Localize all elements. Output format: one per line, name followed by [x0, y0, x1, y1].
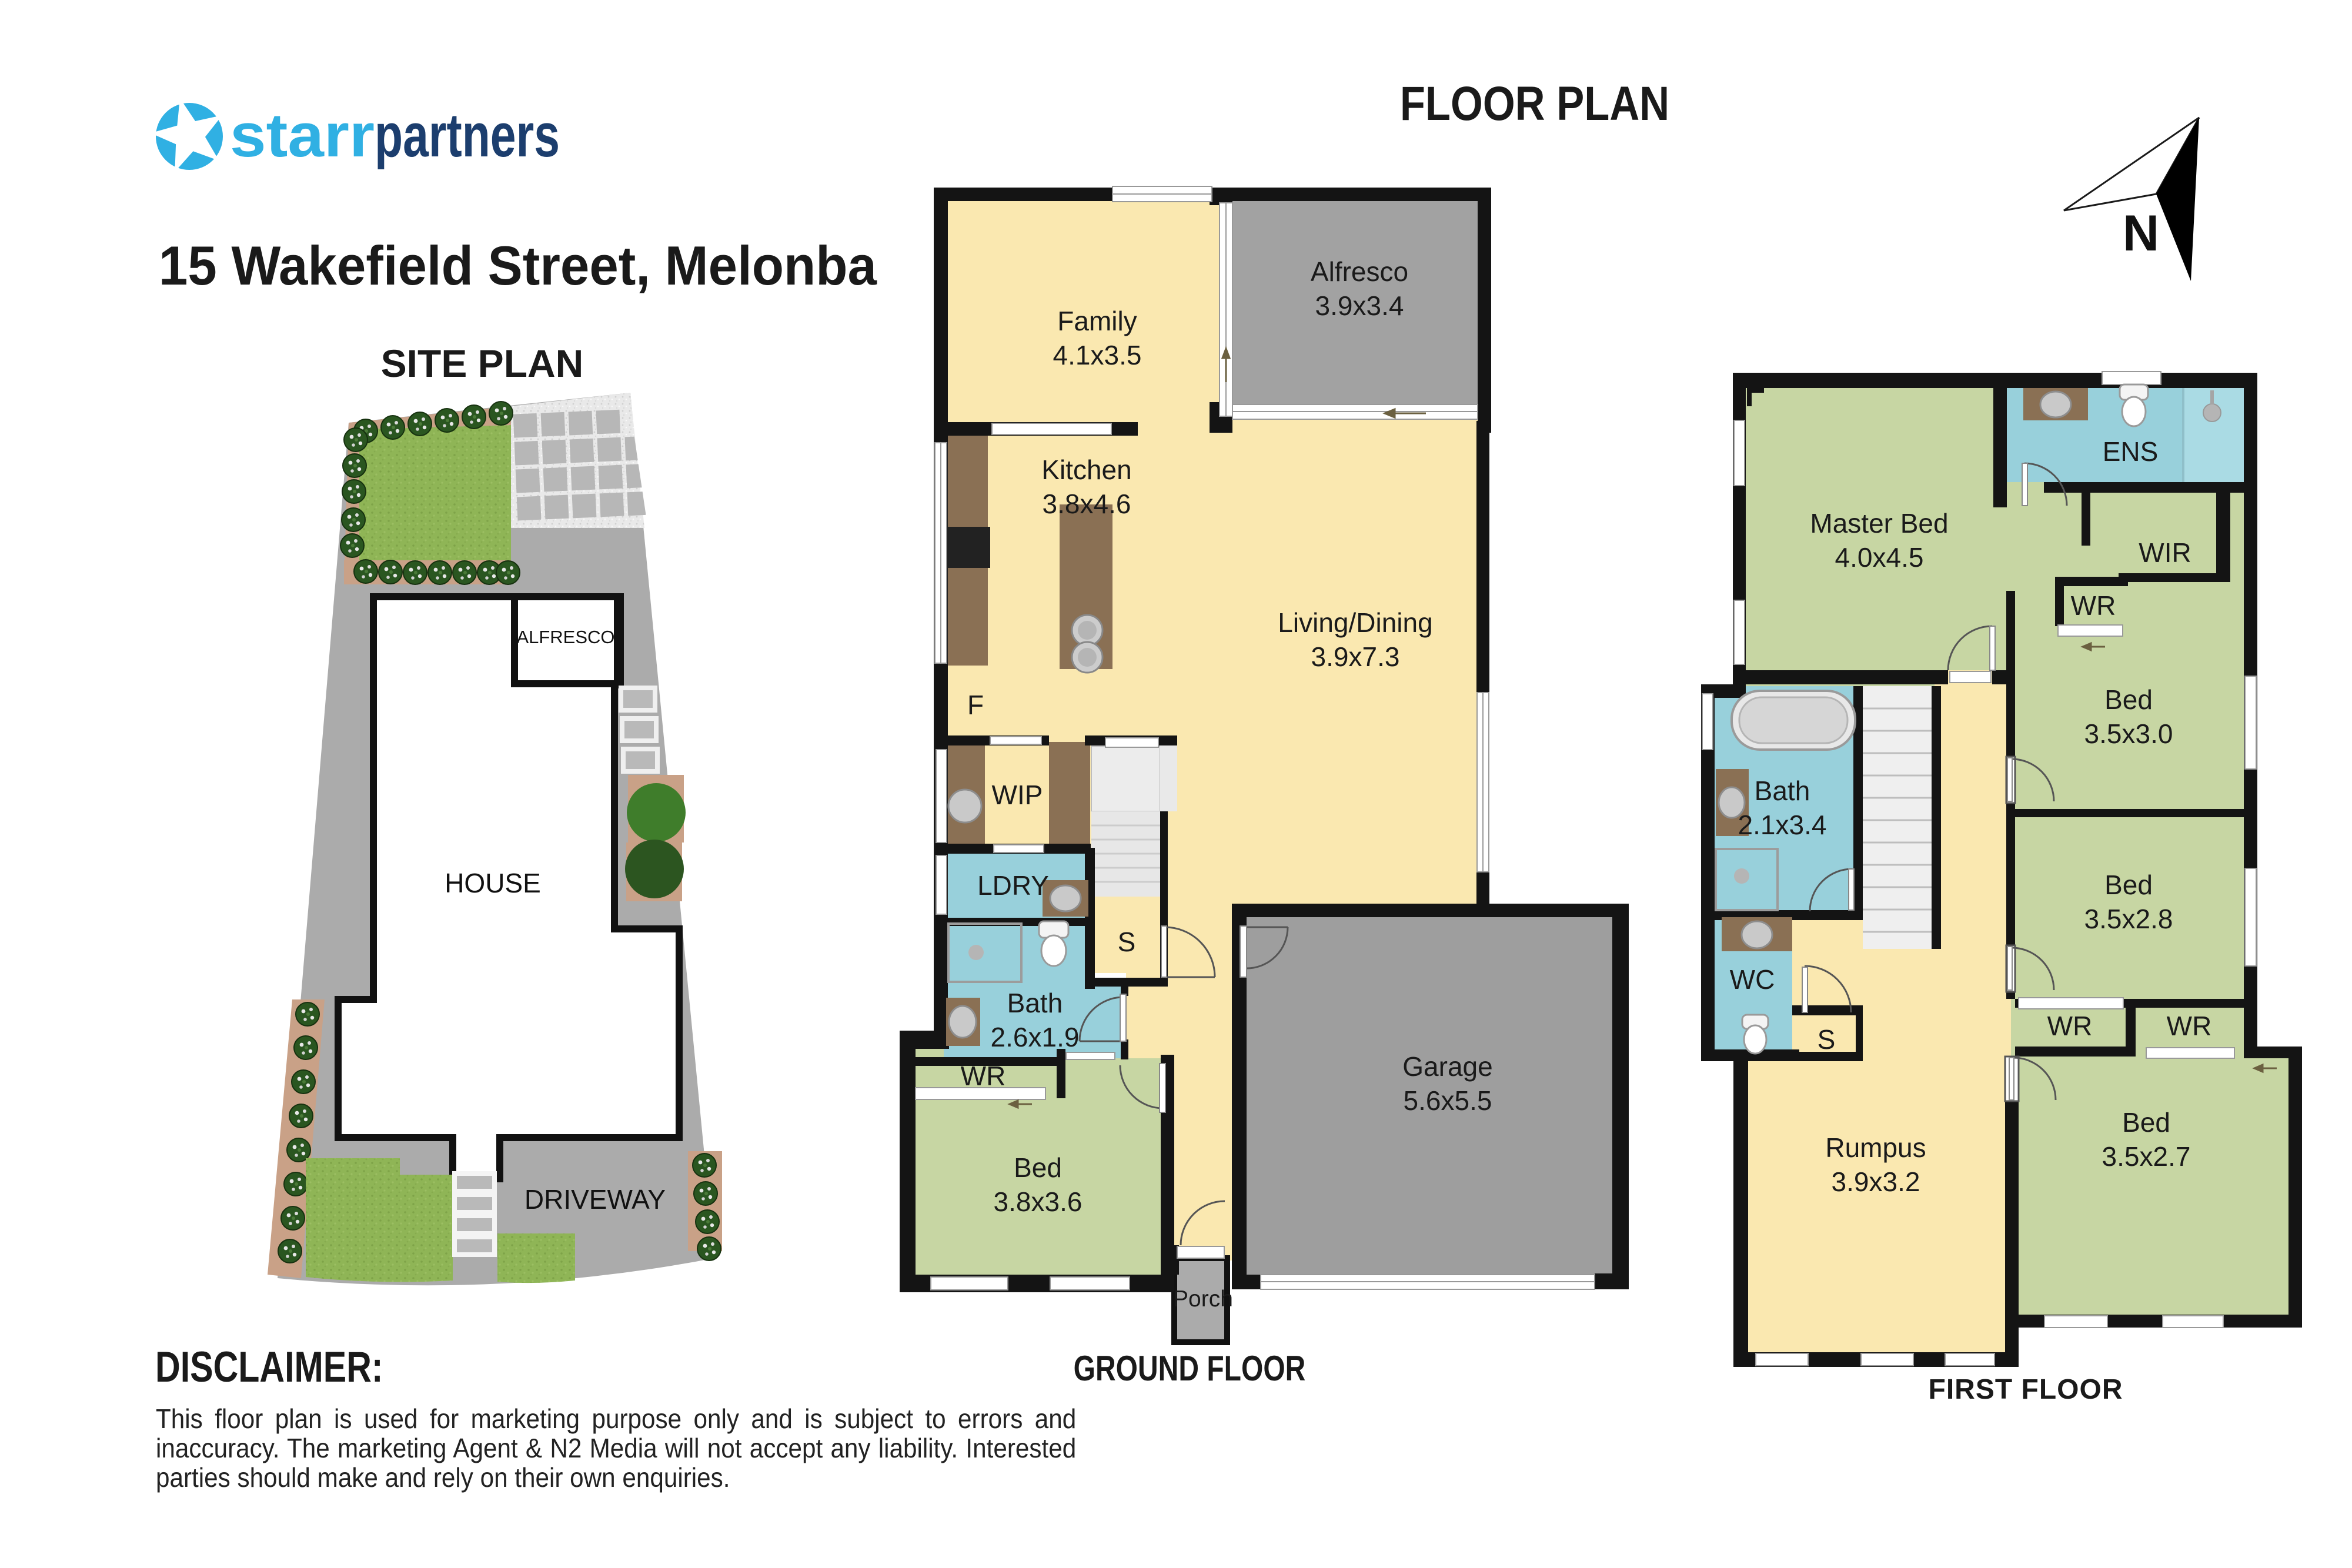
svg-text:3.9x3.2: 3.9x3.2: [1832, 1166, 1920, 1197]
svg-text:3.9x3.4: 3.9x3.4: [1315, 290, 1404, 321]
svg-text:Kitchen: Kitchen: [1041, 454, 1131, 485]
svg-text:3.5x3.0: 3.5x3.0: [2084, 718, 2173, 749]
svg-text:4.0x4.5: 4.0x4.5: [1835, 542, 1924, 573]
svg-text:Rumpus: Rumpus: [1825, 1132, 1926, 1163]
svg-text:3.8x3.6: 3.8x3.6: [994, 1186, 1083, 1217]
svg-text:ENS: ENS: [2103, 436, 2159, 467]
svg-text:Living/Dining: Living/Dining: [1278, 607, 1432, 638]
svg-text:Bath: Bath: [1007, 988, 1063, 1018]
svg-text:WR: WR: [2167, 1011, 2212, 1041]
svg-text:WIP: WIP: [992, 780, 1043, 810]
svg-text:WR: WR: [961, 1061, 1006, 1091]
svg-text:Bath: Bath: [1755, 775, 1810, 806]
svg-text:4.1x3.5: 4.1x3.5: [1053, 340, 1142, 370]
svg-text:WC: WC: [1730, 964, 1775, 995]
svg-text:Alfresco: Alfresco: [1311, 256, 1408, 287]
svg-text:WIR: WIR: [2139, 537, 2191, 568]
svg-text:Family: Family: [1057, 306, 1137, 336]
svg-text:Bed: Bed: [1014, 1152, 1062, 1183]
svg-text:HOUSE: HOUSE: [445, 868, 541, 898]
svg-text:Master Bed: Master Bed: [1810, 508, 1948, 539]
svg-text:5.6x5.5: 5.6x5.5: [1404, 1085, 1492, 1116]
svg-text:DRIVEWAY: DRIVEWAY: [524, 1184, 666, 1215]
svg-text:WR: WR: [2047, 1011, 2093, 1041]
svg-text:LDRY: LDRY: [977, 870, 1049, 901]
svg-text:Bed: Bed: [2104, 870, 2153, 900]
svg-text:WR: WR: [2071, 590, 2116, 621]
svg-text:2.6x1.9: 2.6x1.9: [991, 1022, 1080, 1052]
svg-text:partners: partners: [375, 101, 560, 170]
svg-text:3.5x2.8: 3.5x2.8: [2084, 904, 2173, 934]
svg-text:starr: starr: [230, 101, 375, 170]
svg-text:Porch: Porch: [1173, 1286, 1233, 1312]
svg-text:3.9x7.3: 3.9x7.3: [1311, 641, 1400, 672]
svg-text:S: S: [1818, 1024, 1836, 1055]
svg-text:3.8x4.6: 3.8x4.6: [1043, 489, 1131, 519]
svg-text:2.1x3.4: 2.1x3.4: [1738, 810, 1827, 840]
svg-text:ALFRESCO: ALFRESCO: [516, 627, 614, 647]
svg-text:F: F: [967, 690, 984, 720]
svg-text:Bed: Bed: [2122, 1107, 2170, 1138]
svg-text:Bed: Bed: [2104, 684, 2153, 715]
svg-text:S: S: [1118, 927, 1136, 957]
svg-text:3.5x2.7: 3.5x2.7: [2102, 1141, 2191, 1172]
svg-text:N: N: [2123, 205, 2159, 262]
svg-text:Garage: Garage: [1402, 1051, 1492, 1082]
